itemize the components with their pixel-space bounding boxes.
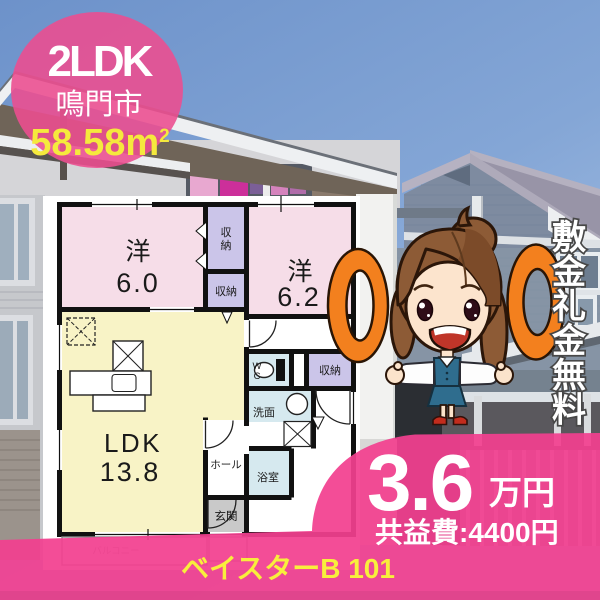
svg-text:ベイスターB 101: ベイスターB 101 [181,553,395,584]
svg-text:礼: 礼 [552,288,586,326]
svg-text:無: 無 [552,357,586,395]
svg-text:3.6: 3.6 [367,438,472,527]
svg-text:万円: 万円 [489,474,555,511]
svg-text:金: 金 [551,253,587,292]
svg-text:共益費:4400円: 共益費:4400円 [375,517,559,548]
svg-text:金: 金 [551,322,587,361]
svg-text:C: C [254,371,261,382]
svg-text:納: 納 [221,239,232,252]
svg-text:洋: 洋 [125,238,150,266]
svg-text:13.8: 13.8 [100,457,161,487]
svg-text:料: 料 [552,392,586,430]
svg-text:58.58m2: 58.58m2 [30,122,169,164]
svg-text:収: 収 [221,226,232,239]
svg-text:LDK: LDK [104,428,162,458]
svg-text:浴室: 浴室 [257,470,279,484]
svg-text:洗面: 洗面 [253,406,275,419]
svg-text:6.2: 6.2 [277,282,321,312]
svg-text:ホール: ホール [210,459,242,471]
svg-text:収納: 収納 [215,285,237,298]
svg-text:収納: 収納 [319,364,341,377]
svg-text:鳴門市: 鳴門市 [55,88,142,121]
svg-text:2LDK: 2LDK [48,37,154,86]
svg-text:6.0: 6.0 [116,268,160,298]
svg-text:敷: 敷 [552,219,586,257]
svg-text:玄関: 玄関 [215,509,238,523]
